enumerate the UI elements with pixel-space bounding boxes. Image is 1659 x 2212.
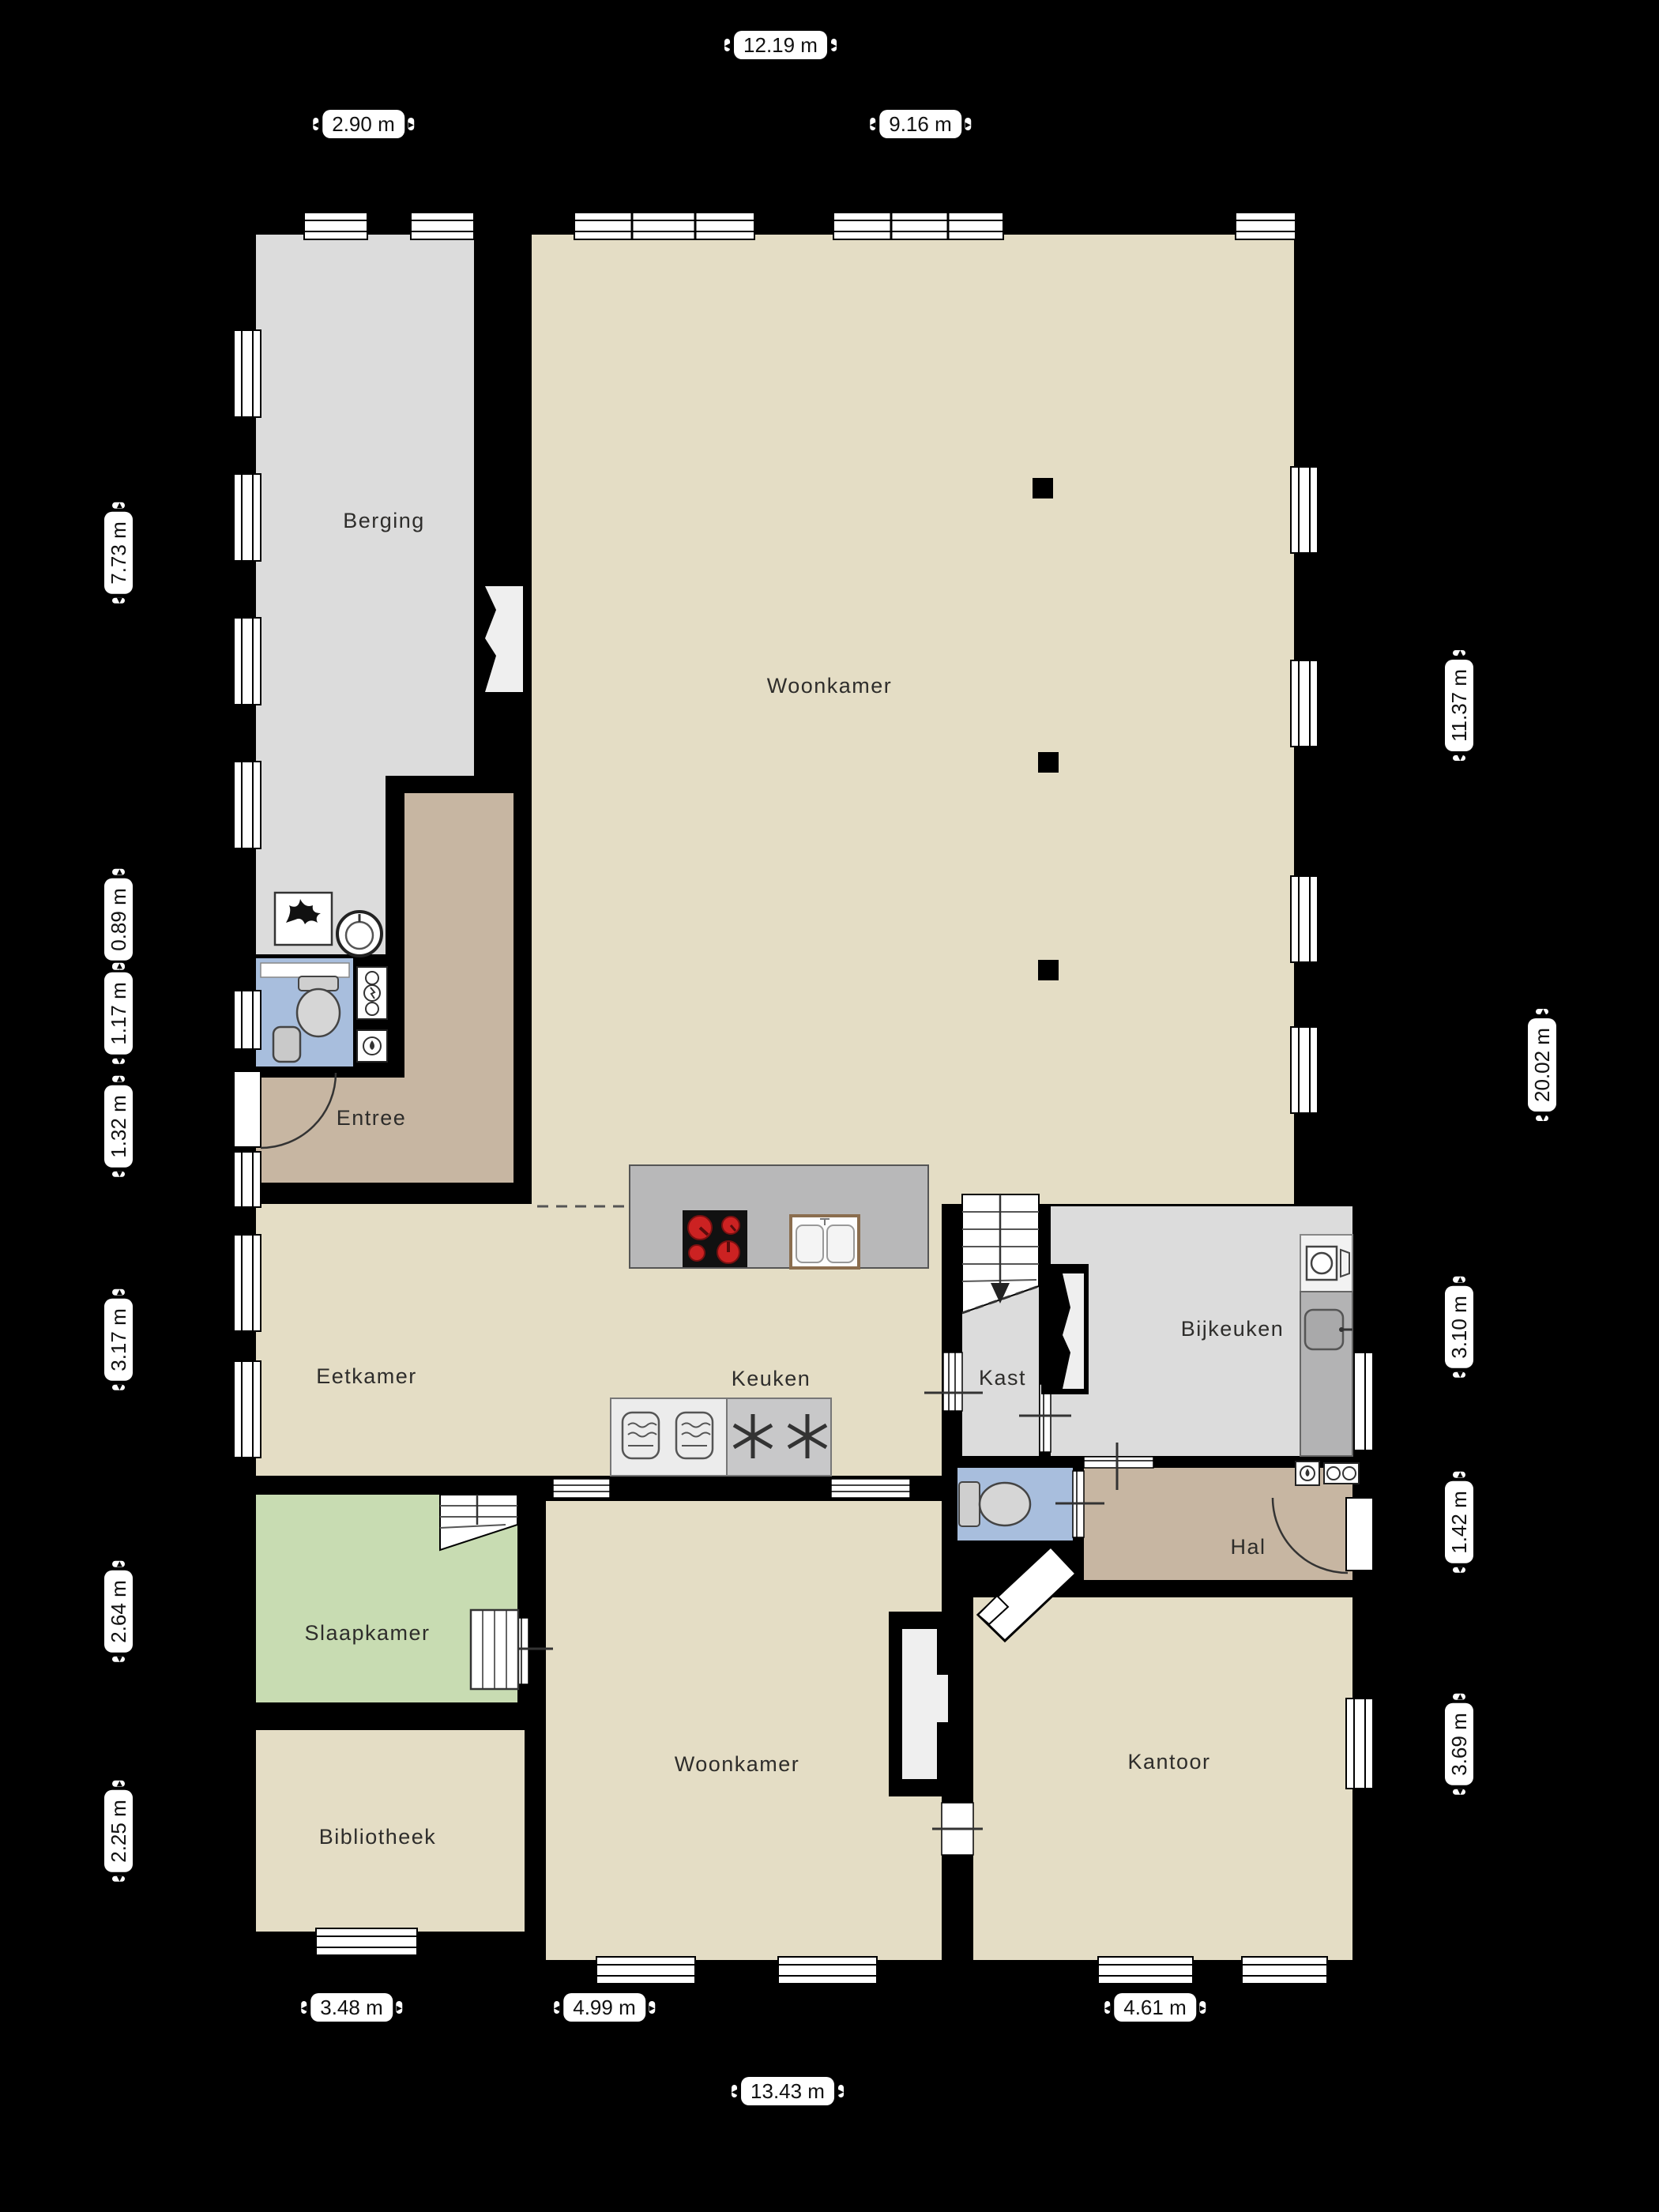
window (574, 213, 754, 239)
room-label-berging: Berging (343, 509, 425, 532)
room-label-woonkamer-boven: Woonkamer (767, 674, 893, 698)
room-label-woonkamer-beneden: Woonkamer (675, 1752, 800, 1776)
dimension-left-6: 2.64 m (104, 1571, 133, 1653)
window (316, 1928, 417, 1955)
dimension-left-2: 0.89 m (104, 878, 133, 961)
chimney-niche-woonkamer (474, 574, 532, 704)
window (1346, 1698, 1373, 1789)
fireplace-icon (275, 893, 332, 945)
room-woonkamer-boven (532, 235, 1294, 1204)
window (234, 330, 261, 417)
room-label-keuken: Keuken (732, 1367, 811, 1390)
room-label-bibliotheek: Bibliotheek (319, 1825, 437, 1849)
dimension-bottom-2: 4.99 m (563, 1993, 645, 2022)
dimension-left-7: 2.25 m (104, 1790, 133, 1872)
window (1291, 876, 1318, 962)
room-label-bijkeuken: Bijkeuken (1181, 1317, 1285, 1341)
window (1098, 1957, 1193, 1984)
window (234, 762, 261, 848)
window (234, 991, 261, 1049)
column (1038, 752, 1059, 773)
wardrobe (471, 1610, 518, 1689)
window (1242, 1957, 1327, 1984)
chimney-niche-bijkeuken (1041, 1264, 1089, 1394)
dimension-left-1: 7.73 m (104, 512, 133, 594)
room-label-slaapkamer: Slaapkamer (304, 1621, 430, 1645)
stove-icon (683, 1210, 747, 1267)
column (1038, 960, 1059, 980)
window (778, 1957, 877, 1984)
dimension-top-right: 9.16 m (879, 110, 961, 138)
window (411, 213, 474, 239)
window (596, 1957, 695, 1984)
dimension-right-3: 1.42 m (1445, 1481, 1473, 1563)
kitchen-island-counter (630, 1165, 928, 1268)
dimension-right-total: 20.02 m (1528, 1018, 1556, 1112)
water-drop-meter-icon (1296, 1461, 1319, 1485)
dimension-bottom-total: 13.43 m (741, 2077, 834, 2105)
window (1291, 1027, 1318, 1113)
window (304, 213, 367, 239)
toilet-icon (959, 1482, 1030, 1526)
floorplan-canvas: Berging Woonkamer Entree Eetkamer Keuken… (0, 0, 1659, 2212)
water-drop-meter-icon (357, 1030, 387, 1062)
dimension-left-3: 1.17 m (104, 972, 133, 1055)
dimension-right-2: 3.10 m (1445, 1286, 1473, 1368)
window (234, 474, 261, 561)
window (833, 213, 1003, 239)
dimension-bottom-3: 4.61 m (1114, 1993, 1196, 2022)
dimension-left-4: 1.32 m (104, 1085, 133, 1168)
room-berging (256, 235, 474, 776)
dimension-top-left: 2.90 m (322, 110, 404, 138)
window (1291, 467, 1318, 553)
dimension-top-total: 12.19 m (734, 31, 827, 59)
double-sink-icon (791, 1216, 859, 1268)
window (234, 1235, 261, 1331)
washbasin-icon (273, 1027, 300, 1062)
utility-meter-icon (357, 967, 387, 1019)
room-label-kast: Kast (979, 1366, 1026, 1390)
window (234, 1152, 261, 1207)
washing-machine-icon (1300, 1235, 1352, 1292)
dimension-right-4: 3.69 m (1445, 1703, 1473, 1785)
column (1033, 478, 1053, 498)
room-label-eetkamer: Eetkamer (316, 1364, 417, 1388)
window (234, 618, 261, 705)
dimension-right-1: 11.37 m (1445, 660, 1473, 751)
room-label-hal: Hal (1230, 1535, 1266, 1559)
round-washbasin-icon (337, 912, 382, 956)
room-woonkamer-beneden (546, 1501, 942, 1960)
room-label-kantoor: Kantoor (1127, 1750, 1210, 1774)
window (1236, 213, 1296, 239)
window (234, 1361, 261, 1458)
chimney-niche-woonkamer-beneden (889, 1612, 973, 1796)
utility-meter-icon (1324, 1463, 1359, 1484)
appliance-row (611, 1398, 831, 1476)
dimension-left-5: 3.17 m (104, 1299, 133, 1381)
floorplan-drawing: Berging Woonkamer Entree Eetkamer Keuken… (0, 0, 1659, 2212)
window (1291, 660, 1318, 747)
room-label-entree: Entree (337, 1106, 407, 1130)
room-kantoor (973, 1597, 1352, 1960)
bijkeuken-counter (1300, 1292, 1352, 1456)
dimension-bottom-1: 3.48 m (310, 1993, 393, 2022)
